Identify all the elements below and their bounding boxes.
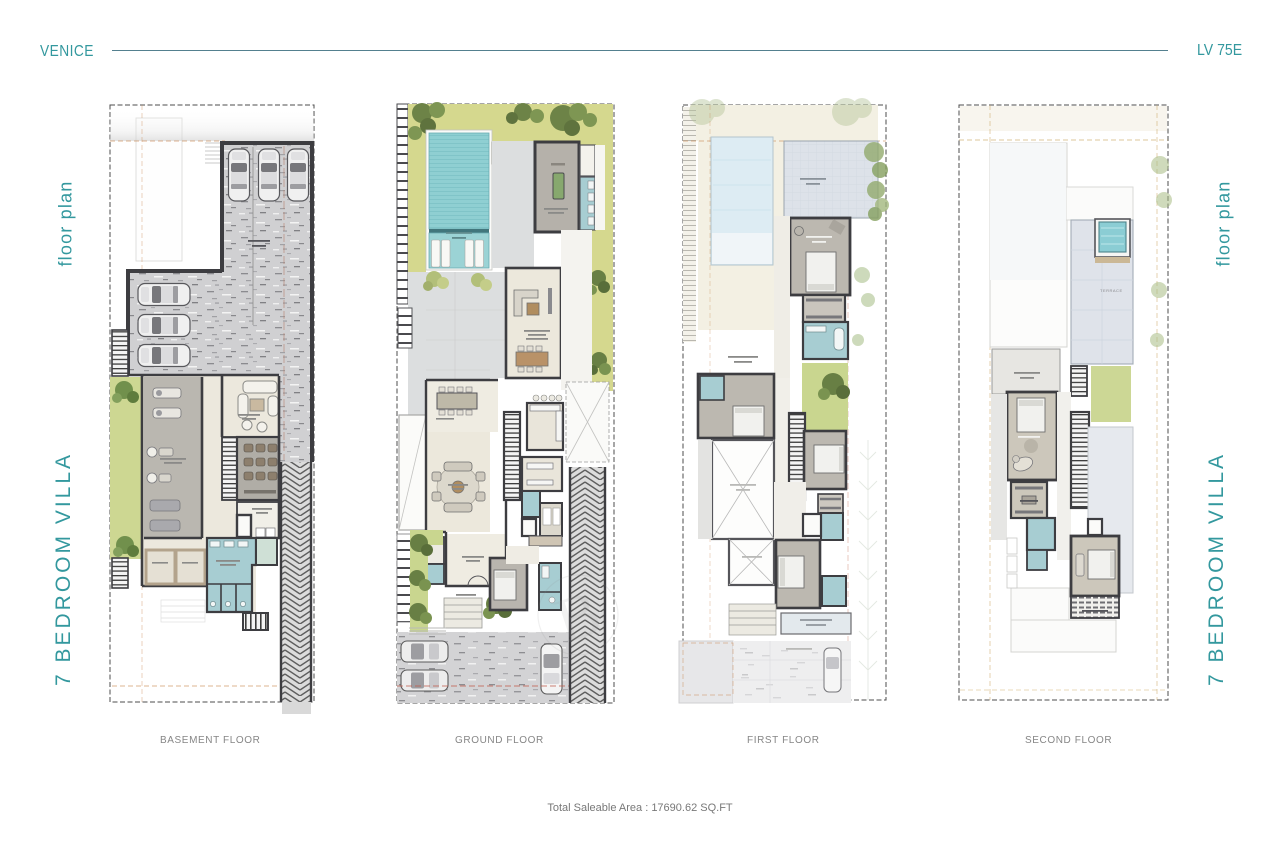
svg-text:TERRACE: TERRACE [1100,288,1123,293]
